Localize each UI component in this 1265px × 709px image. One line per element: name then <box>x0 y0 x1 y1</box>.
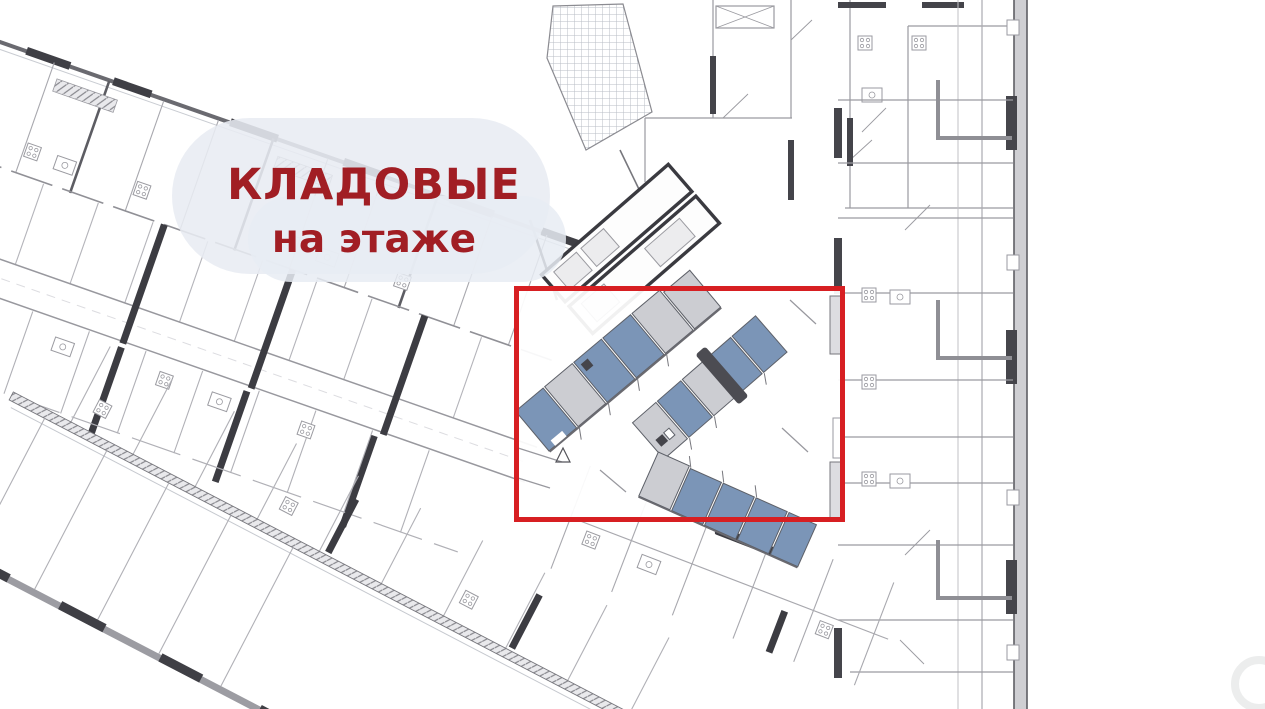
watermark-circle <box>1235 660 1265 708</box>
right-wing <box>834 0 1027 709</box>
highlight-box <box>514 286 845 522</box>
caption: КЛАДОВЫЕ на этаже <box>180 164 568 259</box>
caption-line1: КЛАДОВЫЕ <box>180 164 568 207</box>
caption-line2: на этаже <box>180 220 568 259</box>
slide: КЛАДОВЫЕ на этаже <box>0 0 1265 709</box>
